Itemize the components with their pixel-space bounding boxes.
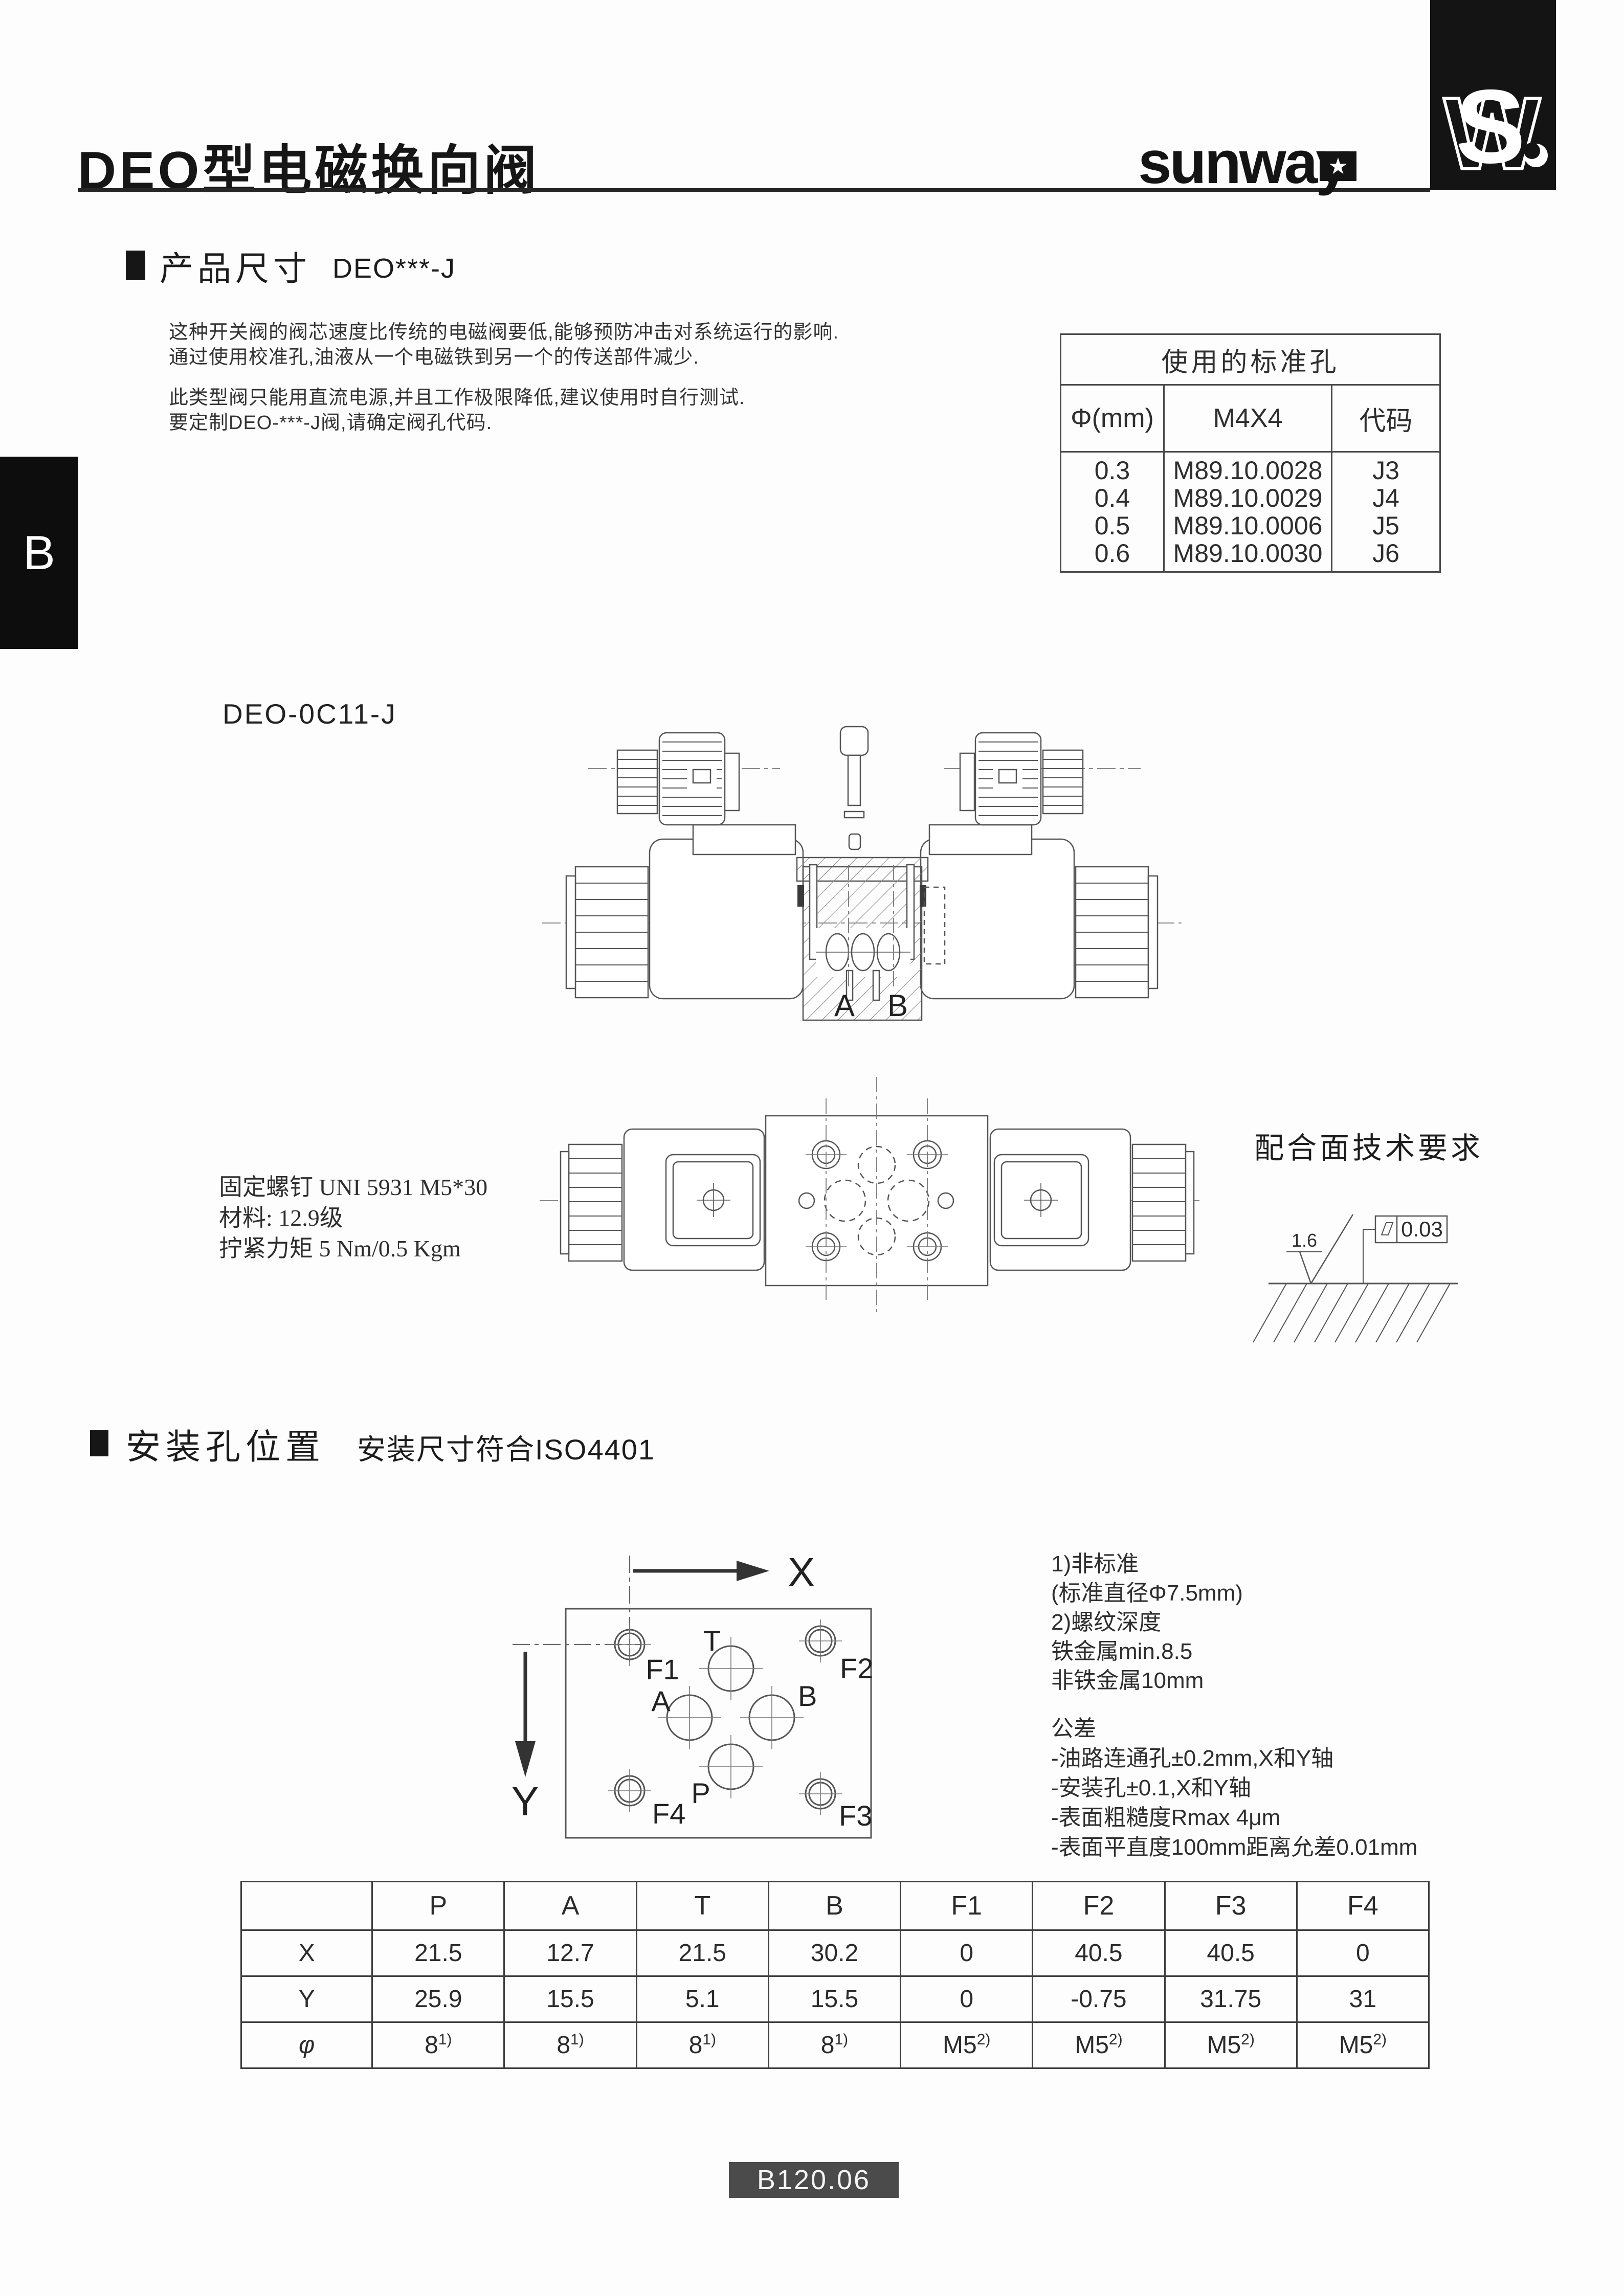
footnote-ref: 2): [1241, 2031, 1255, 2048]
value: J3: [1332, 457, 1439, 484]
mounting-notes: 1)非标准 (标准直径Φ7.5mm) 2)螺纹深度 铁金属min.8.5 非铁金…: [1051, 1549, 1243, 1695]
y-value: 15.5: [768, 1976, 900, 2022]
hole-p-label: P: [691, 1777, 710, 1809]
section-bullet: [90, 1430, 108, 1456]
value: 0.3: [1061, 457, 1163, 484]
phi-value: M52): [1297, 2022, 1429, 2068]
col-header: F2: [1033, 1882, 1165, 1930]
logo-monogram-icon: W S: [1430, 0, 1556, 190]
tolerance-line: -安装孔±0.1,X和Y轴: [1051, 1773, 1417, 1803]
x-value: 21.5: [636, 1930, 768, 1976]
col-header: B: [768, 1882, 900, 1930]
valve-bottom-view-drawing: [537, 1069, 1202, 1319]
std-col-part: M4X4: [1164, 385, 1332, 452]
port-a-label: A: [834, 988, 855, 1023]
x-value: 12.7: [504, 1930, 636, 1976]
paragraph-line: 要定制DEO-***-J阀,请确定阀孔代码.: [169, 411, 745, 436]
phi-value: M52): [1165, 2022, 1297, 2068]
value: 8: [689, 2032, 703, 2059]
x-value: 0: [1297, 1930, 1429, 1976]
y-value: 31: [1297, 1976, 1429, 2022]
x-value: 40.5: [1033, 1930, 1165, 1976]
y-arrowhead-icon: [515, 1741, 536, 1777]
page-code: B120.06: [757, 2164, 871, 2196]
y-value: 25.9: [372, 1976, 504, 2022]
value: 0.6: [1061, 539, 1163, 567]
section-bullet: [126, 251, 145, 280]
footnote-ref: 1): [570, 2031, 584, 2048]
y-value: 31.75: [1165, 1976, 1297, 2022]
hole-position-table: P A T B F1 F2 F3 F4 X 21.5 12.7 21.5 30.…: [240, 1881, 1430, 2069]
value: 8: [425, 2032, 438, 2059]
std-col-code: 代码: [1332, 385, 1440, 452]
y-value: -0.75: [1033, 1976, 1165, 2022]
x-arrowhead-icon: [737, 1561, 769, 1581]
x-value: 0: [901, 1930, 1033, 1976]
phi-value: 81): [504, 2022, 636, 2068]
col-header: F1: [901, 1882, 1033, 1930]
note-line: 1)非标准: [1051, 1549, 1243, 1579]
hole-t-label: T: [703, 1625, 721, 1657]
port-holes-large: [658, 1637, 804, 1798]
section-product-subtitle: DEO***-J: [332, 253, 456, 284]
col-header: A: [504, 1882, 636, 1930]
note-line: 非铁金属10mm: [1051, 1666, 1243, 1695]
value: J5: [1332, 512, 1439, 539]
value: 8: [821, 2032, 835, 2059]
col-header: F4: [1297, 1882, 1429, 1930]
value: 8: [557, 2032, 570, 2059]
phi-value: 81): [768, 2022, 900, 2068]
page-title: DEO型电磁换向阀: [78, 127, 540, 204]
surface-hatching: [1253, 1284, 1450, 1342]
section-mounting-title: 安装孔位置: [126, 1419, 325, 1469]
note-line: (标准直径Φ7.5mm): [1051, 1579, 1243, 1608]
star-icon: ★: [1328, 153, 1348, 179]
value: M5: [943, 2032, 977, 2059]
chapter-tab-label: B: [23, 525, 55, 580]
mounting-holes-small: [608, 1619, 842, 1815]
value: M89.10.0006: [1165, 512, 1331, 539]
value: M5: [1207, 2032, 1241, 2059]
paragraph-line: 通过使用校准孔,油液从一个电磁铁到另一个的传送部件减少.: [169, 345, 839, 370]
value: J6: [1332, 539, 1439, 567]
col-header: T: [636, 1882, 768, 1930]
fixing-screw-note: 固定螺钉 UNI 5931 M5*30 材料: 12.9级 拧紧力矩 5 Nm/…: [219, 1172, 487, 1264]
std-code-cell: J3 J4 J5 J6: [1332, 452, 1440, 572]
value: M89.10.0030: [1165, 539, 1331, 567]
x-value: 40.5: [1165, 1930, 1297, 1976]
y-value: 15.5: [504, 1976, 636, 2022]
value: M5: [1075, 2032, 1109, 2059]
chapter-tab: B: [0, 457, 78, 649]
footnote-ref: 2): [1373, 2031, 1387, 2048]
row-label: φ: [241, 2022, 372, 2068]
hole-a-label: A: [651, 1685, 671, 1717]
section-mounting-subtitle: 安装尺寸符合ISO4401: [357, 1427, 655, 1468]
standard-hole-table: 使用的标准孔 Φ(mm) M4X4 代码 0.3 0.4 0.5 0.6 M89…: [1060, 333, 1441, 573]
hole-f1-label: F1: [646, 1653, 679, 1685]
x-value: 30.2: [768, 1930, 900, 1976]
footnote-ref: 1): [438, 2031, 452, 2048]
paragraph-line: 这种开关阀的阀芯速度比传统的电磁阀要低,能够预防冲击对系统运行的影响.: [169, 320, 839, 345]
mounting-hole-diagram: X Y T F1 F2 A B P F4 F3: [460, 1509, 1023, 1866]
value: M5: [1339, 2032, 1373, 2059]
screw-note-line: 固定螺钉 UNI 5931 M5*30: [219, 1172, 487, 1203]
std-table-title: 使用的标准孔: [1061, 334, 1440, 385]
value: M89.10.0028: [1165, 457, 1331, 484]
screw-note-line: 拧紧力矩 5 Nm/0.5 Kgm: [219, 1233, 487, 1264]
value: 0.4: [1061, 484, 1163, 512]
tolerance-line: -油路连通孔±0.2mm,X和Y轴: [1051, 1744, 1417, 1773]
tolerance-line: -表面平直度100mm距离允差0.01mm: [1051, 1833, 1417, 1862]
value: J4: [1332, 484, 1439, 512]
roughness-value: 1.6: [1292, 1230, 1317, 1251]
axis-x-label: X: [788, 1549, 815, 1595]
valve-side-section-drawing: A B: [540, 713, 1184, 1025]
col-header: F3: [1165, 1882, 1297, 1930]
footnote-ref: 2): [1109, 2031, 1123, 2048]
hole-b-label: B: [798, 1680, 817, 1712]
model-label: DEO-0C11-J: [223, 697, 397, 730]
phi-value: 81): [636, 2022, 768, 2068]
phi-value: M52): [901, 2022, 1033, 2068]
footnote-ref: 1): [702, 2031, 716, 2048]
value: 0.5: [1061, 512, 1163, 539]
y-value: 5.1: [636, 1976, 768, 2022]
product-paragraph-2: 此类型阀只能用直流电源,并且工作极限降低,建议使用时自行测试. 要定制DEO-*…: [169, 386, 745, 436]
x-value: 21.5: [372, 1930, 504, 1976]
tolerance-line: -表面粗糙度Rmax 4μm: [1051, 1803, 1417, 1833]
row-label: X: [241, 1930, 372, 1976]
mating-surface-title: 配合面技术要求: [1254, 1124, 1483, 1167]
mating-surface-drawing: 1.6 0.03: [1225, 1186, 1542, 1360]
product-paragraph-1: 这种开关阀的阀芯速度比传统的电磁阀要低,能够预防冲击对系统运行的影响. 通过使用…: [169, 320, 839, 370]
hole-f3-label: F3: [839, 1799, 872, 1832]
hole-f4-label: F4: [652, 1797, 685, 1830]
logo-box: W S: [1430, 0, 1556, 190]
tolerance-title: 公差: [1051, 1714, 1417, 1744]
y-value: 0: [901, 1976, 1033, 2022]
value: M89.10.0029: [1165, 484, 1331, 512]
footnote-ref: 1): [834, 2031, 848, 2048]
valve-body-geometry: [542, 727, 1182, 1020]
corner-cell: [241, 1882, 372, 1930]
paragraph-line: 此类型阀只能用直流电源,并且工作极限降低,建议使用时自行测试.: [169, 386, 745, 411]
row-label: Y: [241, 1976, 372, 2022]
std-diameter-cell: 0.3 0.4 0.5 0.6: [1061, 452, 1164, 572]
port-b-label: B: [887, 988, 908, 1023]
axis-y-label: Y: [511, 1779, 539, 1824]
tolerance-notes: 公差 -油路连通孔±0.2mm,X和Y轴 -安装孔±0.1,X和Y轴 -表面粗糙…: [1051, 1714, 1417, 1862]
svg-text:S: S: [1456, 68, 1526, 185]
note-line: 铁金属min.8.5: [1051, 1637, 1243, 1666]
flatness-value: 0.03: [1401, 1217, 1443, 1241]
phi-value: 81): [372, 2022, 504, 2068]
section-product-title: 产品尺寸: [160, 241, 311, 290]
brand-logo-text: sunway: [1138, 128, 1347, 197]
page-code-badge: B120.06: [729, 2162, 899, 2198]
std-col-diameter: Φ(mm): [1061, 385, 1164, 452]
brand-star-icon: ★: [1320, 151, 1356, 181]
valve-bottom-geometry: [540, 1077, 1199, 1313]
footnote-ref: 2): [977, 2031, 991, 2048]
phi-value: M52): [1033, 2022, 1165, 2068]
note-line: 2)螺纹深度: [1051, 1608, 1243, 1637]
screw-note-line: 材料: 12.9级: [219, 1203, 487, 1233]
std-part-cell: M89.10.0028 M89.10.0029 M89.10.0006 M89.…: [1164, 452, 1332, 572]
col-header: P: [372, 1882, 504, 1930]
hole-f2-label: F2: [840, 1652, 873, 1684]
datasheet-page: DEO型电磁换向阀 sunway ★ W S 产品尺寸 DEO***-J 这种开…: [0, 0, 1624, 2296]
